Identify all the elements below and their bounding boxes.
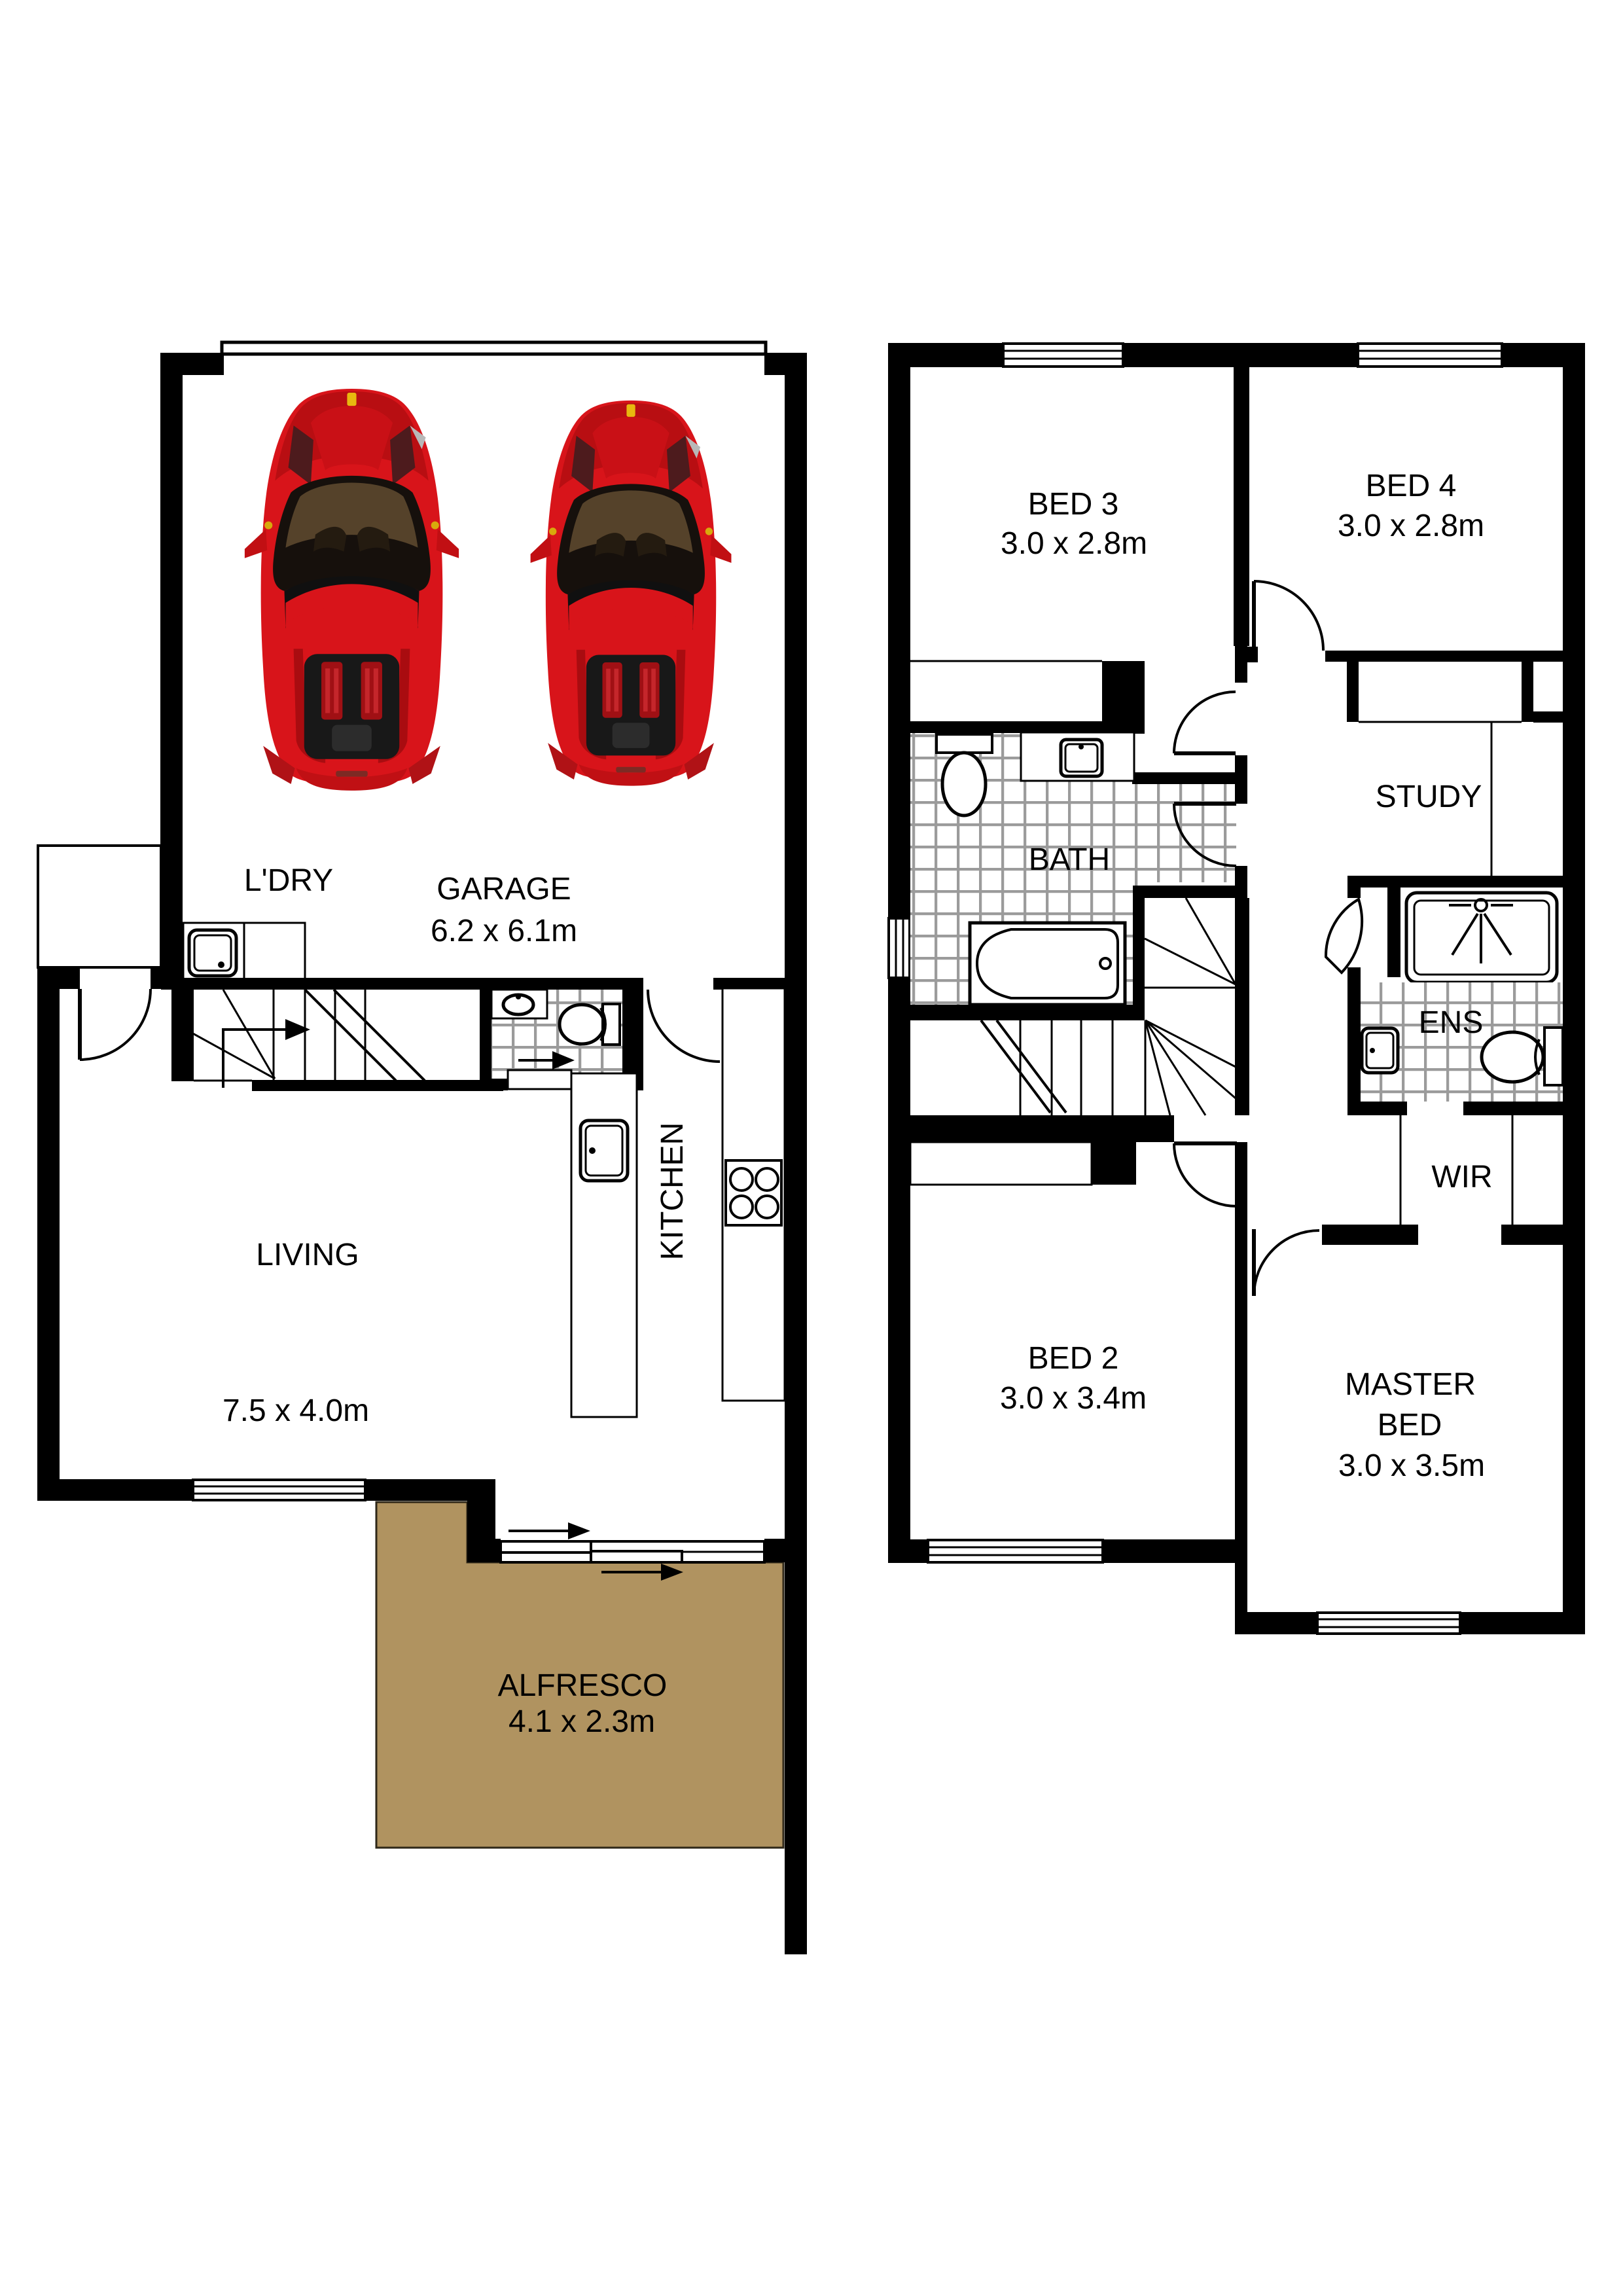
svg-text:WIR: WIR — [1431, 1160, 1492, 1194]
svg-text:BED 4: BED 4 — [1366, 469, 1457, 503]
svg-text:7.5 x 4.0m: 7.5 x 4.0m — [223, 1393, 369, 1428]
svg-text:BED: BED — [1378, 1408, 1442, 1443]
svg-text:6.2 x 6.1m: 6.2 x 6.1m — [431, 914, 577, 948]
svg-text:3.0 x 3.5m: 3.0 x 3.5m — [1338, 1448, 1485, 1483]
svg-text:BATH: BATH — [1029, 842, 1110, 877]
svg-text:3.0 x 2.8m: 3.0 x 2.8m — [1001, 526, 1147, 561]
svg-text:3.0 x 3.4m: 3.0 x 3.4m — [1000, 1381, 1147, 1416]
svg-text:GARAGE: GARAGE — [437, 872, 571, 906]
svg-text:MASTER: MASTER — [1345, 1367, 1476, 1402]
svg-text:STUDY: STUDY — [1376, 780, 1482, 814]
svg-text:BED 2: BED 2 — [1028, 1341, 1119, 1376]
svg-text:KITCHEN: KITCHEN — [655, 1122, 690, 1261]
svg-text:L'DRY: L'DRY — [244, 863, 333, 898]
svg-text:BED 3: BED 3 — [1028, 487, 1119, 522]
svg-text:ALFRESCO: ALFRESCO — [498, 1668, 668, 1703]
svg-text:3.0 x 2.8m: 3.0 x 2.8m — [1338, 509, 1484, 543]
svg-text:ENS: ENS — [1419, 1005, 1484, 1040]
svg-text:4.1 x 2.3m: 4.1 x 2.3m — [508, 1704, 655, 1739]
svg-text:LIVING: LIVING — [256, 1238, 359, 1272]
